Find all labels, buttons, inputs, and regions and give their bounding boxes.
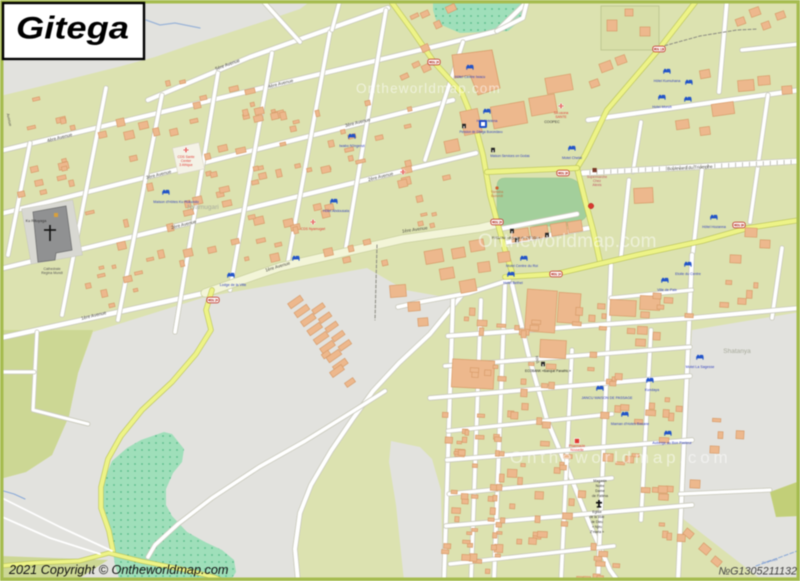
svg-text:Eglise: Eglise	[592, 510, 601, 514]
svg-text:ECOBANK «Banque Panafric.»: ECOBANK «Banque Panafric.»	[525, 369, 571, 373]
svg-text:Iwabo N'Ingenzi: Iwabo N'Ingenzi	[339, 144, 365, 148]
svg-text:de la Voie: de la Voie	[590, 515, 605, 519]
svg-text:Maman d'Hotes Basane: Maman d'Hotes Basane	[611, 422, 649, 426]
svg-text:№G1305211132: №G1305211132	[718, 566, 797, 578]
svg-text:COOPEC: COOPEC	[544, 120, 560, 124]
svg-text:Magasin: Magasin	[593, 479, 607, 483]
svg-text:Hôtel Abdousala: Hôtel Abdousala	[323, 209, 349, 213]
svg-text:Alexis: Alexis	[592, 183, 601, 187]
svg-text:2021 Copyright © Ontheworldmap: 2021 Copyright © Ontheworldmap.com	[8, 563, 229, 577]
svg-text:Ville de Paix: Ville de Paix	[657, 288, 677, 292]
svg-text:Hotel Moruh: Hotel Moruh	[652, 105, 672, 109]
svg-text:RN 1: RN 1	[552, 272, 560, 276]
svg-text:Ontheworldmap.com: Ontheworldmap.com	[510, 448, 731, 467]
svg-text:Motel Centre du Roi: Motel Centre du Roi	[506, 264, 538, 268]
svg-text:Lodge de la Ville: Lodge de la Ville	[220, 283, 247, 287]
svg-text:de Fatima: de Fatima	[592, 494, 608, 498]
svg-text:Kundaya: Kundaya	[645, 388, 659, 392]
svg-text:RN 8: RN 8	[735, 223, 743, 227]
svg-text:Ku Rituyaga: Ku Rituyaga	[26, 219, 48, 223]
svg-text:Gitega: Gitega	[16, 10, 129, 46]
svg-text:RN 13: RN 13	[654, 47, 664, 51]
svg-text:SANTE: SANTE	[555, 115, 567, 119]
svg-text:Regina Mundi: Regina Mundi	[41, 271, 63, 275]
svg-text:RN 2: RN 2	[209, 298, 217, 302]
svg-text:Ontheworldmap.com: Ontheworldmap.com	[478, 231, 657, 252]
svg-text:RN 2: RN 2	[493, 220, 501, 224]
svg-text:3 Afrique: 3 Afrique	[179, 163, 192, 167]
svg-text:Hôtel Hozanna: Hôtel Hozanna	[702, 225, 726, 229]
svg-text:Maison Services on Godas: Maison Services on Godas	[490, 154, 530, 158]
svg-text:CDS Nyamugari: CDS Nyamugari	[301, 227, 326, 231]
svg-text:Hôtel Helena: Hôtel Helena	[477, 119, 498, 123]
svg-text:Burundi: Burundi	[491, 194, 503, 198]
svg-text:Etoile du Centre: Etoile du Centre	[675, 272, 701, 276]
svg-text:RN 3: RN 3	[559, 171, 567, 175]
svg-text:Dame: Dame	[595, 489, 605, 493]
svg-text:Motel Chelal: Motel Chelal	[562, 156, 582, 160]
svg-text:« Njiru: « Njiru	[592, 525, 602, 529]
svg-text:Z'maria »: Z'maria »	[590, 530, 604, 534]
svg-text:Ontheworldmap.com: Ontheworldmap.com	[356, 81, 501, 96]
svg-text:Auberge au Bon Pasteur: Auberge au Bon Pasteur	[652, 441, 692, 445]
svg-text:Hôtel Centre Iwacu: Hôtel Centre Iwacu	[455, 75, 486, 79]
svg-text:de Dieu: de Dieu	[591, 520, 603, 524]
svg-text:Shatanya: Shatanya	[723, 348, 751, 355]
svg-text:JANCU MAISON DE PASSAGE: JANCU MAISON DE PASSAGE	[581, 396, 633, 400]
svg-text:Nyamugari: Nyamugari	[187, 204, 218, 211]
svg-text:Hotel Bethel: Hotel Bethel	[503, 281, 523, 285]
svg-text:Hôtel Kumuhana: Hôtel Kumuhana	[654, 79, 681, 83]
svg-text:Pension de Gitega Buxondavu: Pension de Gitega Buxondavu	[459, 130, 502, 134]
svg-text:Motel La Sagesse: Motel La Sagesse	[686, 365, 715, 369]
svg-text:Notre: Notre	[596, 484, 605, 488]
svg-text:RN 2: RN 2	[430, 60, 438, 64]
